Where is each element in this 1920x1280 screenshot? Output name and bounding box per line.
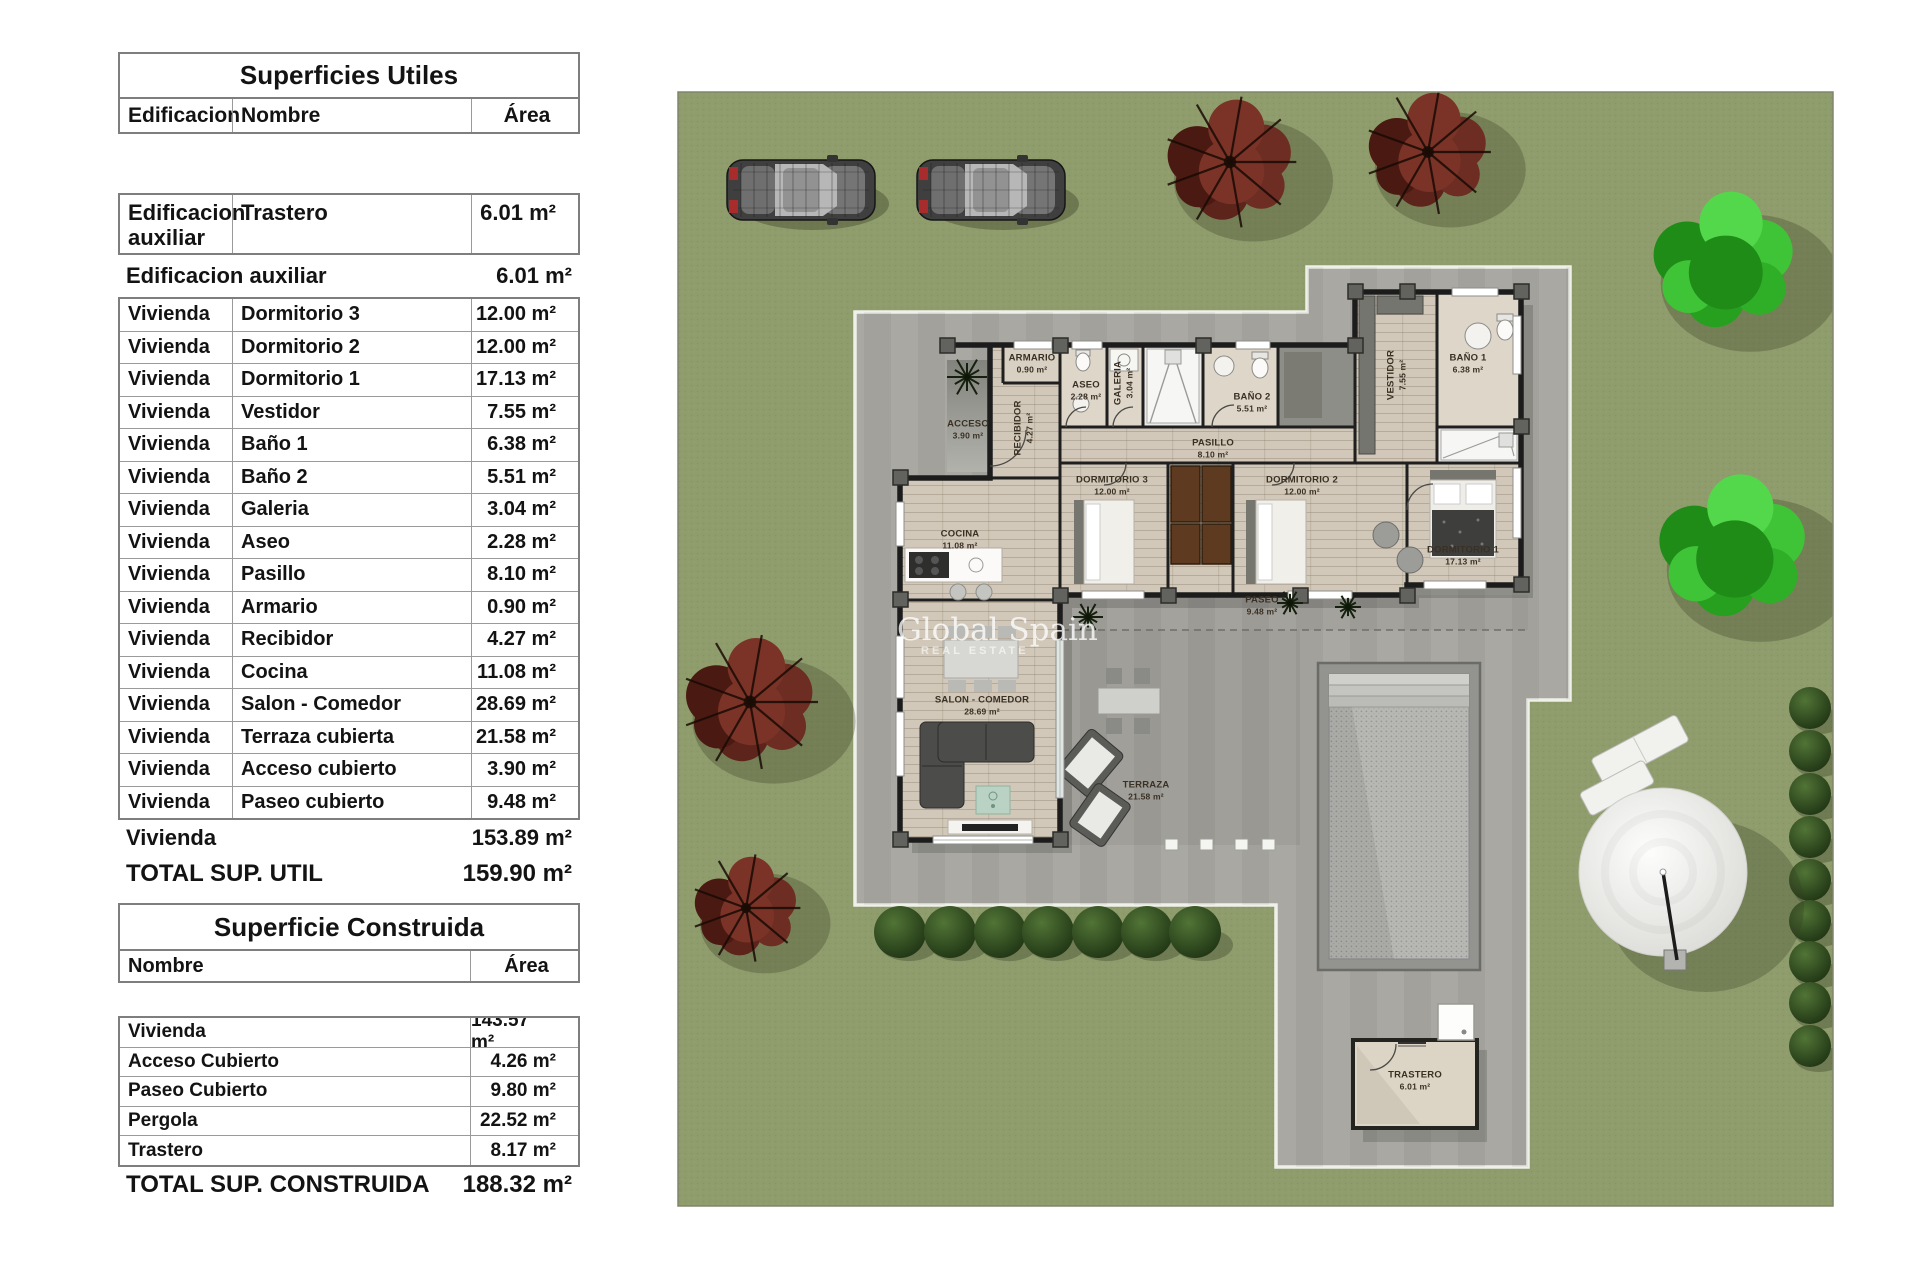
cell-area: 2.28 m² (471, 527, 582, 559)
cell-nombre: Cocina (232, 657, 471, 689)
subtotal-aux-row: Edificacion auxiliar 6.01 m² (118, 255, 580, 297)
table-row: ViviendaBaño 25.51 m² (120, 461, 578, 494)
cell-edificacion: Vivienda (120, 397, 232, 429)
cell-area: 12.00 m² (471, 299, 582, 331)
table-row: Vivienda143.57 m² (120, 1018, 578, 1047)
cell-nombre: Paseo Cubierto (120, 1077, 470, 1106)
cell-nombre: Trastero (232, 195, 471, 253)
subtotal-label: Edificacion auxiliar (126, 263, 327, 289)
cell-area: 6.38 m² (471, 429, 582, 461)
cell-edificacion: Vivienda (120, 559, 232, 591)
watermark-sub: REAL ESTATE (921, 645, 1098, 657)
cell-nombre: Acceso Cubierto (120, 1048, 470, 1077)
cell-area: 12.00 m² (471, 332, 582, 364)
table-row: ViviendaSalon - Comedor28.69 m² (120, 688, 578, 721)
cell-nombre: Salon - Comedor (232, 689, 471, 721)
table-row: ViviendaBaño 16.38 m² (120, 428, 578, 461)
cell-edificacion: Vivienda (120, 592, 232, 624)
watermark-brand: Global Spain (897, 612, 1098, 648)
cell-area: 4.27 m² (471, 624, 582, 656)
car-icon (917, 155, 1079, 230)
car-icon (727, 155, 889, 230)
subtotal-value: 153.89 m² (472, 825, 572, 851)
cell-edificacion: Vivienda (120, 364, 232, 396)
cell-area: 7.55 m² (471, 397, 582, 429)
page: ACCESO3.90 m²RECIBIDOR4.27 m²ARMARIO0.90… (0, 0, 1920, 1280)
table-row: ViviendaArmario0.90 m² (120, 591, 578, 624)
cell-edificacion: Vivienda (120, 462, 232, 494)
table-row: ViviendaPasillo8.10 m² (120, 558, 578, 591)
total-value: 159.90 m² (463, 860, 572, 888)
table-row: ViviendaVestidor7.55 m² (120, 396, 578, 429)
pool (1318, 663, 1480, 970)
table-superficies-utiles: Superficies Utiles Edificacion Nombre Ár… (118, 52, 580, 891)
cell-edificacion: Vivienda (120, 494, 232, 526)
cell-area: 0.90 m² (471, 592, 582, 624)
total-construida-row: TOTAL SUP. CONSTRUIDA 188.32 m² (118, 1167, 580, 1204)
table-row: ViviendaTerraza cubierta21.58 m² (120, 721, 578, 754)
table-row: ViviendaGaleria3.04 m² (120, 493, 578, 526)
cell-area: 5.51 m² (471, 462, 582, 494)
total-label: TOTAL SUP. CONSTRUIDA (126, 1171, 430, 1199)
cell-edificacion: Vivienda (120, 754, 232, 786)
cell-area: 21.58 m² (471, 722, 582, 754)
table-row: ViviendaAcceso cubierto3.90 m² (120, 753, 578, 786)
cell-area: 6.01 m² (471, 195, 582, 253)
table-row: Paseo Cubierto9.80 m² (120, 1076, 578, 1106)
cell-nombre: Dormitorio 2 (232, 332, 471, 364)
cell-area: 9.80 m² (470, 1077, 582, 1106)
cell-nombre: Pasillo (232, 559, 471, 591)
cell-edificacion: Vivienda (120, 527, 232, 559)
table-row: ViviendaCocina11.08 m² (120, 656, 578, 689)
cell-area: 22.52 m² (470, 1107, 582, 1136)
cell-nombre: Galeria (232, 494, 471, 526)
cell-edificacion: Edificacion auxiliar (120, 195, 232, 253)
table-row: Trastero8.17 m² (120, 1135, 578, 1165)
total-util-row: TOTAL SUP. UTIL 159.90 m² (118, 856, 580, 891)
col-header-nombre: Nombre (232, 99, 471, 132)
cell-edificacion: Vivienda (120, 299, 232, 331)
cell-nombre: Armario (232, 592, 471, 624)
col-header-area: Área (470, 951, 582, 981)
cell-nombre: Dormitorio 3 (232, 299, 471, 331)
cell-area: 9.48 m² (471, 787, 582, 819)
table-row: Pergola22.52 m² (120, 1106, 578, 1136)
cell-nombre: Trastero (120, 1136, 470, 1165)
table-row: ViviendaDormitorio 312.00 m² (120, 299, 578, 331)
cell-area: 11.08 m² (471, 657, 582, 689)
watermark: Global Spain REAL ESTATE (897, 612, 1098, 657)
cell-nombre: Baño 2 (232, 462, 471, 494)
table-row: ViviendaAseo2.28 m² (120, 526, 578, 559)
table-row: ViviendaRecibidor4.27 m² (120, 623, 578, 656)
cell-nombre: Baño 1 (232, 429, 471, 461)
cell-area: 8.10 m² (471, 559, 582, 591)
utiles-rows: ViviendaDormitorio 312.00 m²ViviendaDorm… (118, 297, 580, 820)
utiles-title: Superficies Utiles (118, 52, 580, 97)
cell-area: 28.69 m² (471, 689, 582, 721)
cell-area: 4.26 m² (470, 1048, 582, 1077)
cell-area: 8.17 m² (470, 1136, 582, 1165)
construida-title: Superficie Construida (118, 903, 580, 949)
cell-nombre: Paseo cubierto (232, 787, 471, 819)
construida-header-row: Nombre Área (118, 949, 580, 983)
table-row: ViviendaDormitorio 117.13 m² (120, 363, 578, 396)
cell-nombre: Terraza cubierta (232, 722, 471, 754)
utiles-header-row: Edificacion Nombre Área (118, 97, 580, 134)
subtotal-label: Vivienda (126, 825, 216, 851)
table-row: Acceso Cubierto4.26 m² (120, 1047, 578, 1077)
cell-nombre: Vestidor (232, 397, 471, 429)
cell-area: 17.13 m² (471, 364, 582, 396)
cell-edificacion: Vivienda (120, 689, 232, 721)
col-header-area: Área (471, 99, 582, 132)
cell-area: 3.04 m² (471, 494, 582, 526)
cell-edificacion: Vivienda (120, 787, 232, 819)
col-header-nombre: Nombre (120, 951, 470, 981)
cell-edificacion: Vivienda (120, 722, 232, 754)
cell-nombre: Dormitorio 1 (232, 364, 471, 396)
table-superficie-construida: Superficie Construida Nombre Área Vivien… (118, 903, 580, 1204)
cell-area: 143.57 m² (470, 1018, 582, 1047)
cell-nombre: Acceso cubierto (232, 754, 471, 786)
subtotal-value: 6.01 m² (496, 263, 572, 289)
cell-nombre: Pergola (120, 1107, 470, 1136)
cell-area: 3.90 m² (471, 754, 582, 786)
table-row: ViviendaDormitorio 212.00 m² (120, 331, 578, 364)
cell-nombre: Aseo (232, 527, 471, 559)
table-row: ViviendaPaseo cubierto9.48 m² (120, 786, 578, 819)
cell-edificacion: Vivienda (120, 657, 232, 689)
cell-edificacion: Vivienda (120, 332, 232, 364)
cell-nombre: Vivienda (120, 1018, 470, 1047)
cell-edificacion: Vivienda (120, 624, 232, 656)
subtotal-vivienda-row: Vivienda 153.89 m² (118, 820, 580, 856)
total-value: 188.32 m² (463, 1171, 572, 1199)
cell-nombre: Recibidor (232, 624, 471, 656)
cell-edificacion: Vivienda (120, 429, 232, 461)
construida-rows: Vivienda143.57 m²Acceso Cubierto4.26 m²P… (118, 1016, 580, 1167)
table-row: Edificacion auxiliar Trastero 6.01 m² (118, 193, 580, 255)
total-label: TOTAL SUP. UTIL (126, 860, 323, 888)
col-header-edificacion: Edificacion (120, 99, 232, 132)
